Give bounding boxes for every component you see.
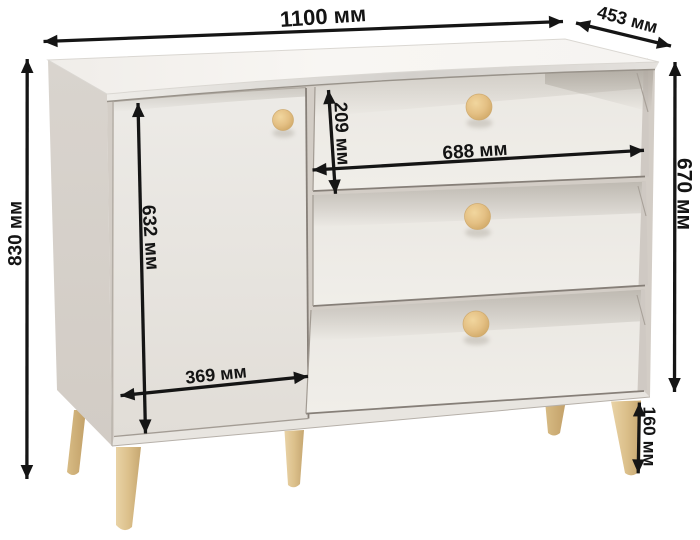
svg-text:209 мм: 209 мм — [330, 101, 354, 165]
svg-text:830 мм: 830 мм — [6, 201, 27, 266]
svg-text:160 мм: 160 мм — [640, 407, 660, 467]
svg-text:670 мм: 670 мм — [673, 158, 696, 230]
